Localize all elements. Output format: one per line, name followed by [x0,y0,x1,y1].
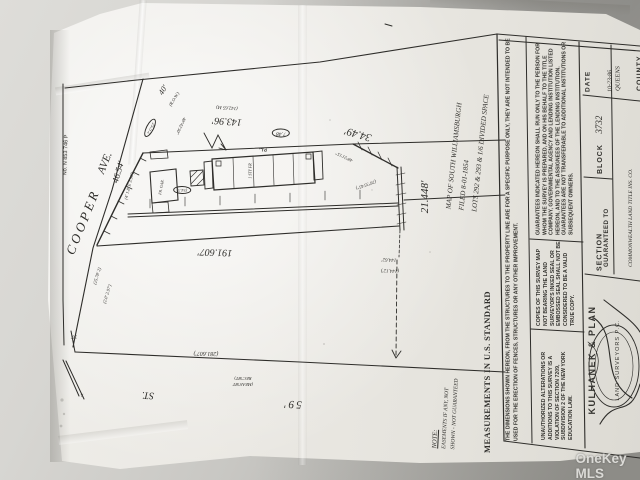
circled-dimension: (54.3) [173,186,192,194]
meas-note-line: (MEAS'MT [233,382,253,387]
meas-note-line: REC'MT) [234,376,251,381]
meas-rec-note: (MEAS'MT REC'MT) [233,375,253,387]
corner-dimension: 30' [71,334,77,339]
note-line: EASEMENTS IF ANY, NOT [442,388,451,449]
county-value: QUEENS [614,66,621,91]
dimension-end: 21.448' [419,181,431,214]
date-label: DATE [585,71,592,92]
dimension-rear: 143.96' [212,114,242,127]
title-block-county-cell: QUEENS COUNTY [604,37,640,91]
street-label-59: 59' [282,398,302,411]
dimension-tie-alt: (144.12') [381,267,399,272]
county-label: COUNTY [636,55,640,91]
note-line: SHOWN - NOT GUARANTEED [450,378,460,449]
surveyor-subtitle: LAND SURVEYORS P.C. [615,319,621,400]
dimension-street: (281.607') [194,350,219,356]
surveyor-name-block: KULHANEK & PLAN LAND SURVEYORS P.C. [579,285,627,435]
watermark: OneKey MLS [575,451,626,480]
title-block-guarantee: GUARANTEES INDICATED HEREON SHALL RUN ON… [536,37,575,235]
property-line-mark: P.L. [259,148,267,153]
measurement-standard-label: MEASUREMENTS IN U.S. STANDARD [482,291,492,453]
title-block-disclaimer: THE DIMENSIONS SHOWN HEREON, FROM THE ST… [505,33,520,441]
dimension-front: 191.607' [197,246,232,258]
title-block-guaranteed-cell: GUARANTEED TO COMMONWEALTH LAND TITLE IN… [592,99,640,267]
note-title: NOTE: [431,429,439,448]
dimension-tie: 144.62' [382,256,397,261]
surveyor-name: KULHANEK & PLAN [587,306,597,415]
survey-photo: No. N 853 746 P COOPER AVE. 40' (R.O.W.)… [0,0,640,480]
title-block-copies: COPIES OF THIS SURVEY MAP NOT BEARING TH… [536,240,577,326]
building-label-main: 1 STY FR [248,163,253,178]
map-note-line: FILED 8-01-1854 [457,160,470,211]
guaranteed-label: GUARANTEED TO [604,208,610,267]
street-label-st: ST. [142,389,155,401]
title-block-alterations: UNAUTHORIZED ALTERATIONS OR ADDITIONS TO… [541,334,575,440]
circled-dimension: 7.48 [272,128,290,137]
paper-stains [60,66,431,427]
guaranteed-value: COMMONWEALTH LAND TITLE INS. CO. [628,169,634,267]
easements-note: NOTE: EASEMENTS IF ANY, NOT SHOWN - NOT … [430,338,464,449]
